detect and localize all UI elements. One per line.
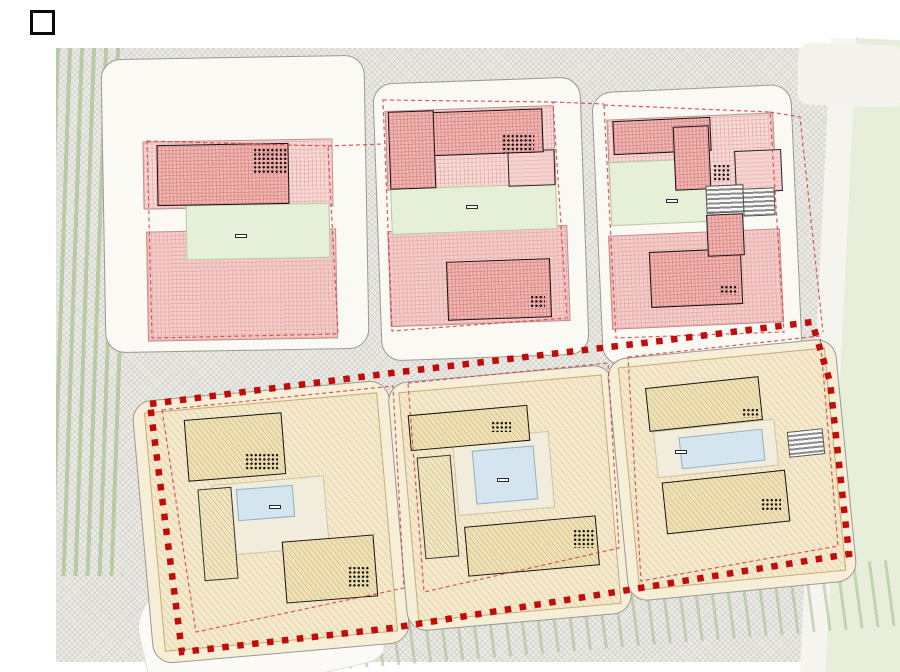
lo21-hotel2-tower-wing	[706, 213, 745, 257]
lo23-lot-label	[466, 205, 478, 209]
lo25-lot-label	[235, 234, 247, 238]
bl24-lot-label	[497, 478, 509, 482]
bl24-tower2-dots	[573, 529, 594, 548]
bl22-tower1-dots	[742, 408, 758, 418]
bl26-tower2-dots	[348, 566, 369, 587]
bl22-tower2-dots	[761, 498, 781, 510]
lo21-lot-label	[666, 199, 678, 203]
site-plan-page	[0, 0, 900, 672]
lo21-parking-rows-2	[742, 187, 775, 216]
page-title	[30, 10, 67, 35]
lo25-green-strip	[186, 203, 331, 261]
bl22-lot-label	[675, 450, 687, 454]
bl22-parking-rows	[787, 428, 826, 458]
road-junction-northeast	[797, 42, 900, 108]
lo21-hotel2-tower	[649, 248, 743, 308]
bl24-pond	[472, 445, 538, 504]
lo21-parking-rows-1	[705, 184, 744, 214]
checkbox-icon	[30, 10, 55, 35]
bl24-tower1-dots	[491, 421, 511, 432]
lo23-green-strip	[390, 183, 558, 235]
bl26-tower1-dots	[245, 453, 278, 471]
lo23-office-tower-wing	[388, 110, 437, 190]
lo23-podium	[507, 149, 555, 187]
bl26-pond	[236, 485, 295, 521]
lo25-tower-dots	[253, 148, 287, 173]
lo23-office2-tower	[446, 258, 552, 321]
bl26-apartment-wing	[197, 487, 238, 581]
lo23-tower2-dots	[530, 295, 545, 309]
bl26-lot-label	[269, 505, 281, 509]
lo23-tower-dots	[502, 134, 534, 153]
lo21-tower-dots	[713, 164, 731, 181]
lo21-tower2-dots	[720, 285, 738, 295]
bl26-apartment1-tower	[184, 412, 287, 481]
lo21-hotel-tower-wing	[673, 125, 712, 191]
